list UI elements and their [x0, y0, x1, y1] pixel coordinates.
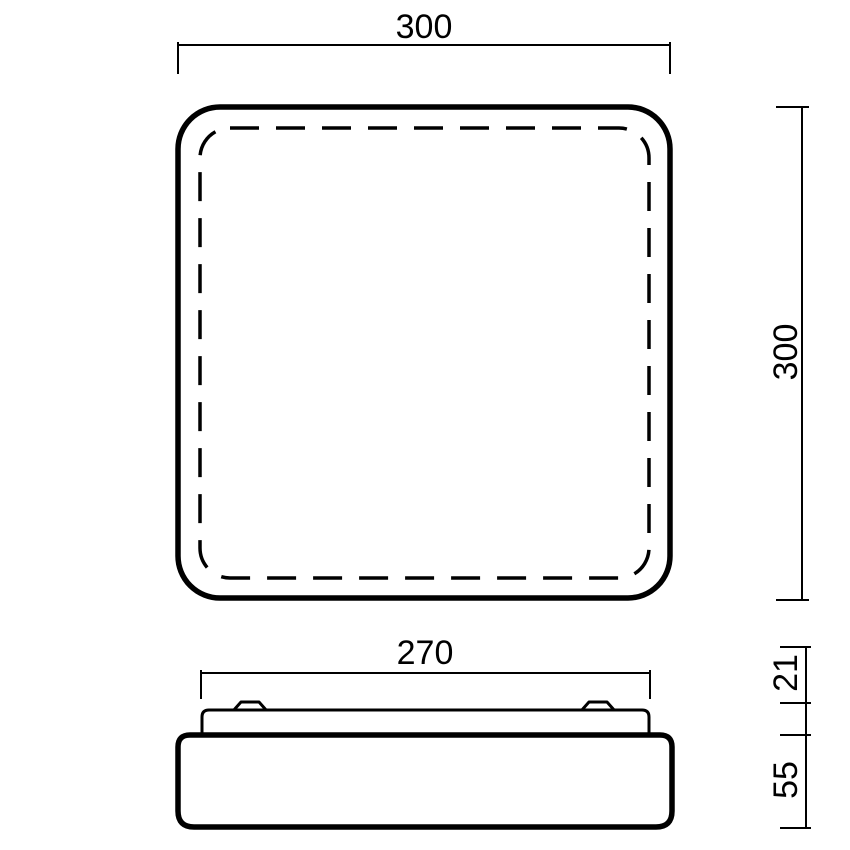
dimension-profile-lower-height-label: 55	[767, 761, 805, 799]
plan-view	[178, 107, 670, 598]
dimension-plan-width-label: 300	[396, 8, 453, 46]
dimension-profile-width-label: 270	[397, 634, 454, 672]
technical-drawing-page: 300 300 270 21 55	[0, 0, 850, 850]
dimension-profile-upper-height-label: 21	[767, 654, 805, 692]
dimension-profile-width: 270	[201, 634, 650, 699]
technical-drawing-canvas: 300 300 270 21 55	[0, 0, 850, 850]
dimension-plan-width: 300	[178, 8, 670, 74]
dimension-plan-height: 300	[767, 107, 809, 600]
profile-view	[178, 702, 672, 827]
fixture-body	[178, 735, 672, 827]
dimension-plan-height-label: 300	[767, 324, 805, 381]
plan-view-outer-outline	[178, 107, 670, 598]
dimension-profile-heights: 21 55	[767, 647, 811, 828]
